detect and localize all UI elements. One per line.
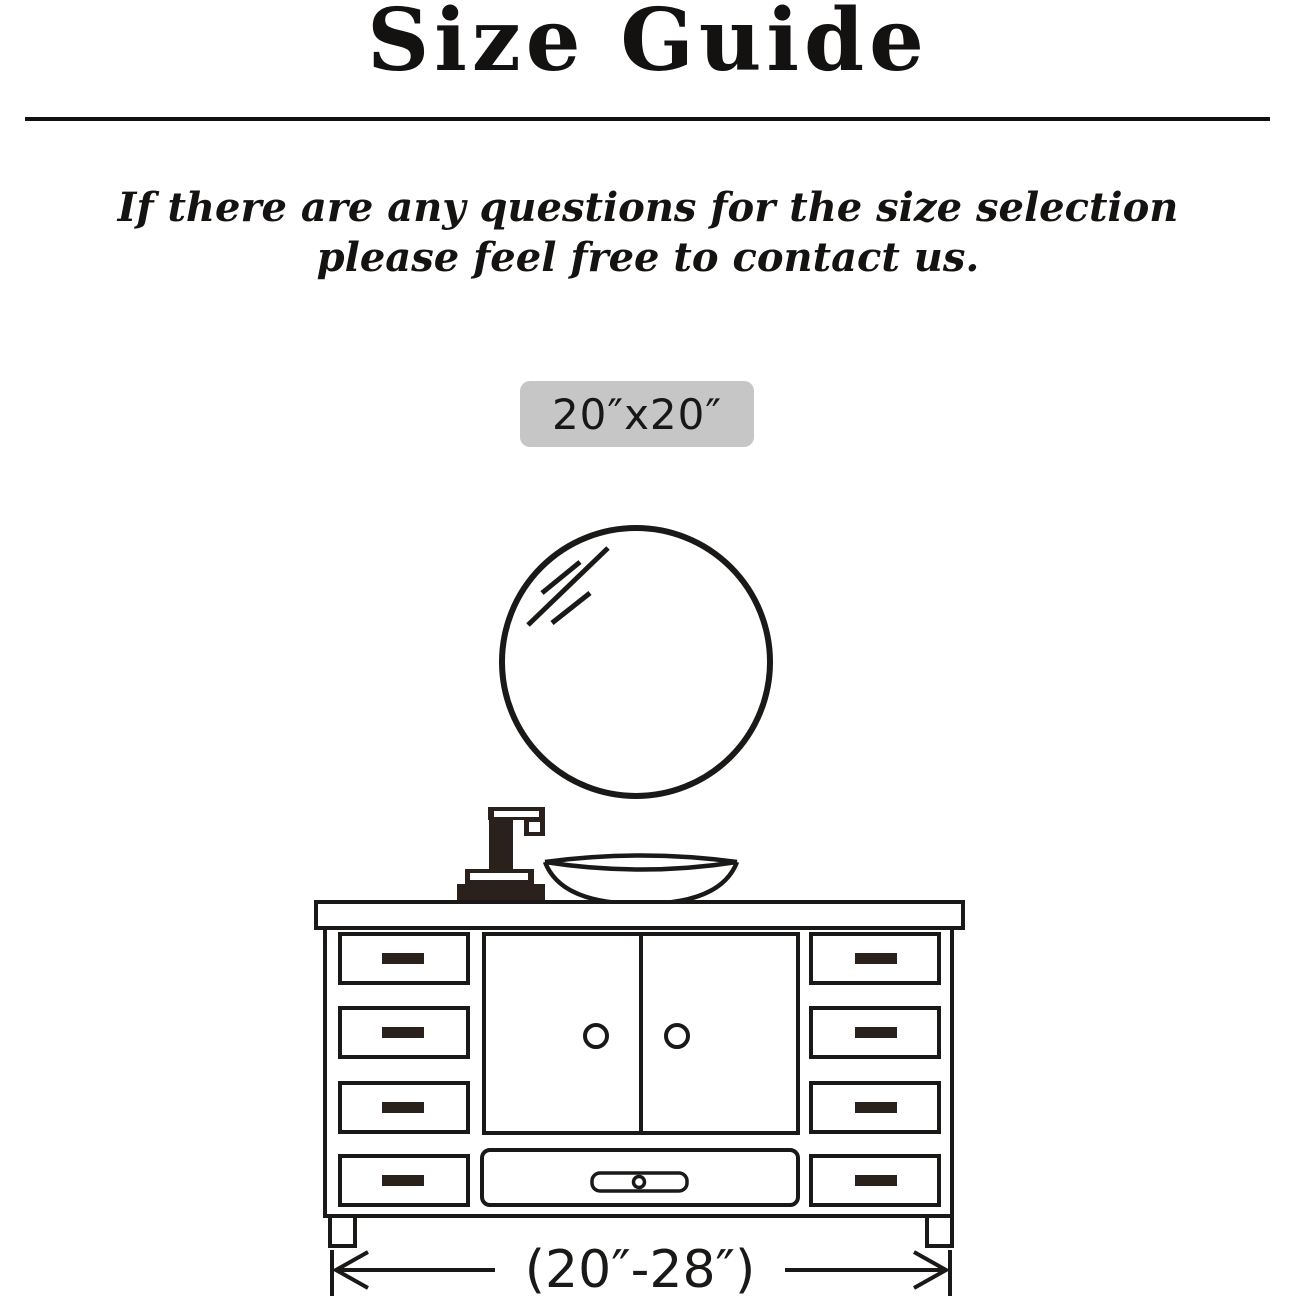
faucet-icon: [457, 807, 545, 900]
vanity-cabinet-icon: [316, 902, 963, 1246]
countertop: [316, 902, 963, 928]
width-range-label: (20″-28″): [525, 1240, 756, 1296]
bathroom-vanity-diagram: (20″-28″): [0, 0, 1296, 1296]
cabinet-foot-right: [927, 1216, 952, 1246]
width-dimension-arrow: (20″-28″): [332, 1240, 950, 1296]
mirror-shine-lines: [528, 548, 608, 625]
cabinet-foot-left: [330, 1216, 355, 1246]
round-mirror-icon: [502, 528, 770, 796]
vessel-sink-icon: [545, 856, 737, 905]
mirror-frame: [502, 528, 770, 796]
size-guide-page: Size Guide If there are any questions fo…: [0, 0, 1296, 1296]
